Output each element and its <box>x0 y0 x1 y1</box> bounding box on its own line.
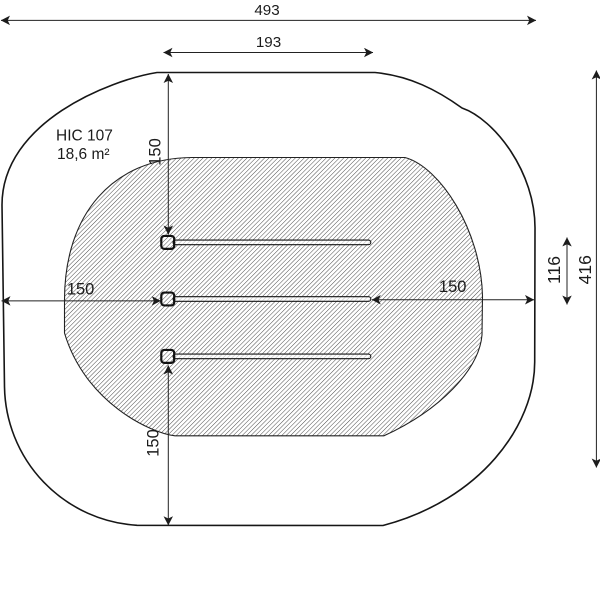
svg-text:150: 150 <box>146 138 164 166</box>
svg-text:416: 416 <box>575 255 595 284</box>
svg-text:HIC 107: HIC 107 <box>56 127 113 144</box>
svg-text:150: 150 <box>67 280 95 298</box>
svg-text:493: 493 <box>254 2 279 19</box>
svg-text:18,6 m²: 18,6 m² <box>57 146 110 163</box>
svg-text:193: 193 <box>256 34 281 51</box>
svg-text:150: 150 <box>145 429 163 457</box>
svg-text:116: 116 <box>544 256 564 284</box>
svg-text:150: 150 <box>439 278 467 296</box>
